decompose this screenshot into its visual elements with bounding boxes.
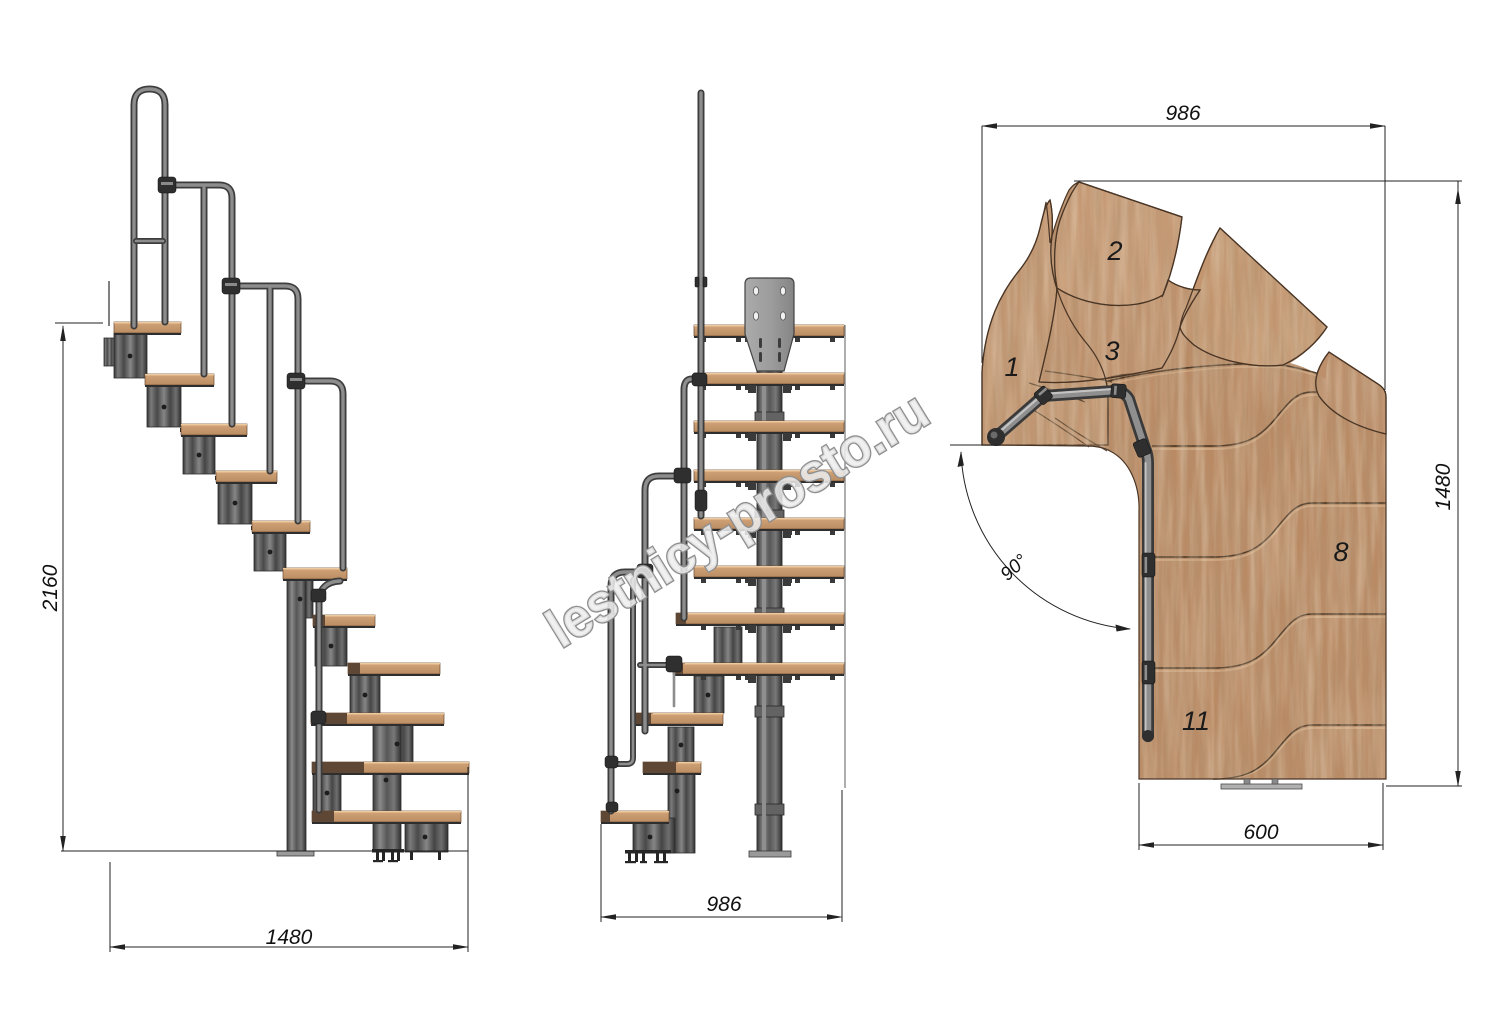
svg-text:11: 11 xyxy=(1182,706,1210,736)
svg-text:986: 986 xyxy=(706,893,741,916)
svg-text:2: 2 xyxy=(1106,236,1122,266)
svg-text:3: 3 xyxy=(1104,336,1119,366)
svg-text:986: 986 xyxy=(1165,102,1200,125)
svg-text:2160: 2160 xyxy=(39,564,62,612)
svg-text:1480: 1480 xyxy=(1432,463,1455,510)
svg-text:1: 1 xyxy=(1004,352,1019,382)
svg-text:600: 600 xyxy=(1243,821,1278,844)
svg-text:1480: 1480 xyxy=(266,926,313,949)
svg-text:8: 8 xyxy=(1333,537,1348,567)
